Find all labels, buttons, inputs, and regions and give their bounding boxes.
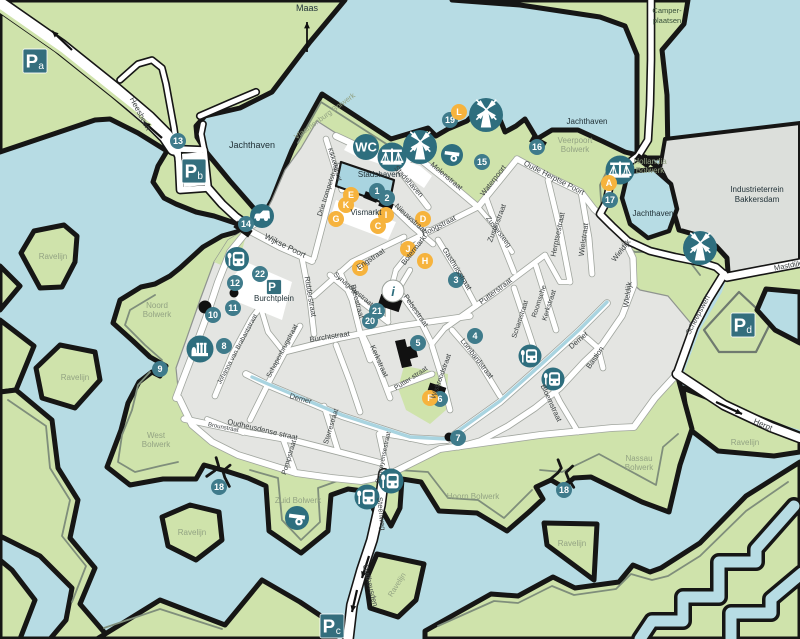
svg-text:Bolwerk: Bolwerk	[625, 463, 654, 472]
svg-text:WC: WC	[355, 140, 377, 155]
svg-text:Ravelijn: Ravelijn	[731, 438, 759, 447]
svg-text:9: 9	[157, 364, 162, 374]
svg-text:12: 12	[230, 278, 240, 288]
svg-text:L: L	[456, 107, 462, 117]
svg-text:7: 7	[455, 433, 460, 443]
svg-text:Ravelijn: Ravelijn	[61, 373, 89, 382]
svg-text:G: G	[332, 214, 339, 224]
svg-text:Burchtplein: Burchtplein	[254, 294, 294, 303]
svg-text:Jachthaven: Jachthaven	[229, 140, 275, 150]
svg-text:4: 4	[472, 331, 477, 341]
svg-text:K: K	[343, 200, 350, 210]
svg-text:17: 17	[605, 195, 615, 205]
svg-text:10: 10	[208, 310, 218, 320]
svg-text:13: 13	[173, 136, 183, 146]
svg-text:P: P	[26, 51, 38, 72]
svg-text:Camper-: Camper-	[652, 6, 682, 15]
svg-text:West: West	[147, 431, 166, 440]
svg-text:Bakkersdam: Bakkersdam	[735, 195, 780, 204]
svg-text:1: 1	[374, 186, 379, 196]
svg-text:Zuid Bolwerk: Zuid Bolwerk	[275, 496, 322, 505]
svg-text:Hoorn Bolwerk: Hoorn Bolwerk	[447, 492, 500, 501]
svg-text:Veerpoort: Veerpoort	[558, 136, 593, 145]
svg-text:Vismarkt: Vismarkt	[351, 208, 383, 217]
svg-text:18: 18	[559, 485, 569, 495]
svg-text:i: i	[391, 284, 395, 299]
svg-text:Hollandia: Hollandia	[633, 157, 667, 166]
svg-text:21: 21	[372, 306, 382, 316]
svg-text:Ravelijn: Ravelijn	[558, 539, 586, 548]
svg-text:14: 14	[241, 219, 251, 229]
svg-text:2: 2	[384, 193, 389, 203]
svg-text:Bolwerk: Bolwerk	[143, 310, 172, 319]
svg-text:15: 15	[477, 157, 487, 167]
svg-text:Bolwerk: Bolwerk	[142, 440, 171, 449]
svg-text:P: P	[323, 616, 335, 637]
svg-text:plaatsen: plaatsen	[653, 16, 681, 25]
svg-text:C: C	[375, 221, 382, 231]
svg-text:8: 8	[221, 341, 226, 351]
svg-text:I: I	[385, 210, 388, 220]
svg-text:Nassau: Nassau	[625, 454, 652, 463]
svg-text:Bolwerk: Bolwerk	[561, 145, 590, 154]
svg-text:Stadshaven: Stadshaven	[358, 170, 400, 179]
svg-text:a: a	[38, 61, 44, 72]
svg-text:H: H	[422, 256, 429, 266]
svg-text:Bolwerk: Bolwerk	[636, 166, 665, 175]
svg-text:c: c	[336, 626, 341, 637]
svg-text:Ravelijn: Ravelijn	[39, 252, 67, 261]
svg-text:P: P	[734, 315, 746, 336]
svg-text:5: 5	[415, 338, 420, 348]
svg-text:11: 11	[228, 303, 238, 313]
svg-text:P: P	[185, 161, 197, 182]
svg-text:b: b	[197, 171, 203, 182]
svg-text:A: A	[606, 178, 613, 188]
svg-text:P: P	[268, 281, 276, 294]
svg-text:22: 22	[255, 269, 265, 279]
svg-text:Ravelijn: Ravelijn	[178, 528, 206, 537]
svg-text:18: 18	[214, 482, 224, 492]
svg-text:Jachthaven: Jachthaven	[567, 117, 608, 126]
svg-text:Jachthaven: Jachthaven	[633, 209, 674, 218]
svg-text:Industrieterrein: Industrieterrein	[730, 185, 783, 194]
svg-text:d: d	[746, 325, 752, 336]
svg-text:16: 16	[532, 142, 542, 152]
svg-text:Maas: Maas	[296, 3, 319, 13]
svg-text:Noord: Noord	[146, 301, 168, 310]
